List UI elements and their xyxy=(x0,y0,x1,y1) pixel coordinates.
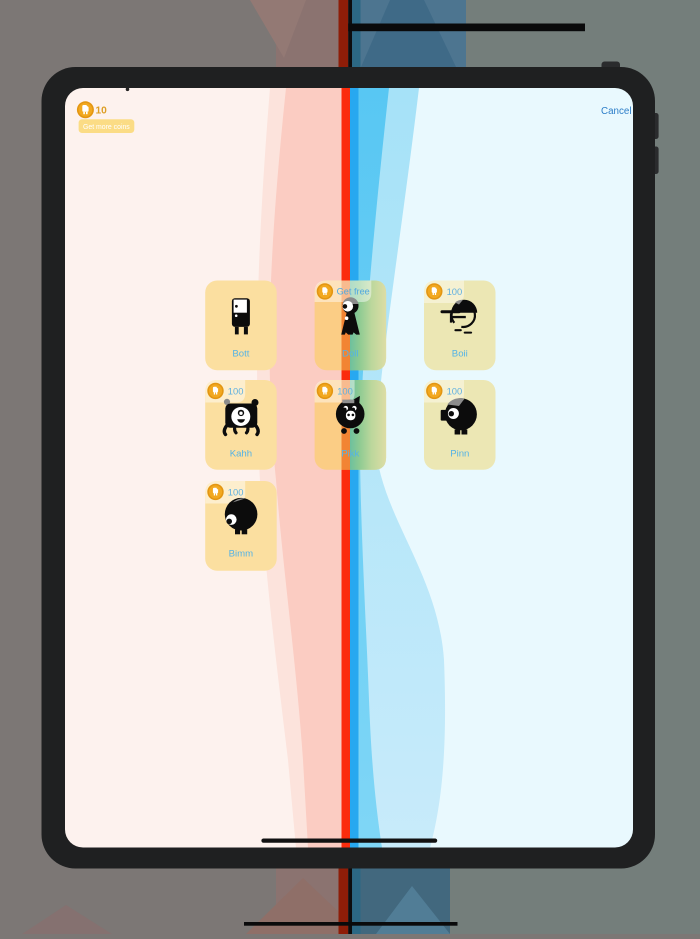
svg-text:Bimm: Bimm xyxy=(229,549,254,560)
svg-text:Cancel: Cancel xyxy=(601,106,632,117)
svg-text:100: 100 xyxy=(337,386,353,397)
svg-text:Pinn: Pinn xyxy=(450,449,469,460)
svg-text:10: 10 xyxy=(96,106,108,117)
svg-text:100: 100 xyxy=(228,487,244,498)
svg-text:Doll: Doll xyxy=(342,349,359,360)
svg-text:Kahh: Kahh xyxy=(230,449,252,460)
svg-text:Get free: Get free xyxy=(337,287,370,297)
svg-text:Pikk: Pikk xyxy=(341,449,359,460)
svg-text:Boii: Boii xyxy=(452,349,468,360)
svg-text:100: 100 xyxy=(228,386,244,397)
svg-text:100: 100 xyxy=(447,386,463,397)
svg-text:100: 100 xyxy=(447,286,463,297)
svg-text:Get more coins: Get more coins xyxy=(83,124,130,131)
svg-text:Bott: Bott xyxy=(232,349,249,360)
